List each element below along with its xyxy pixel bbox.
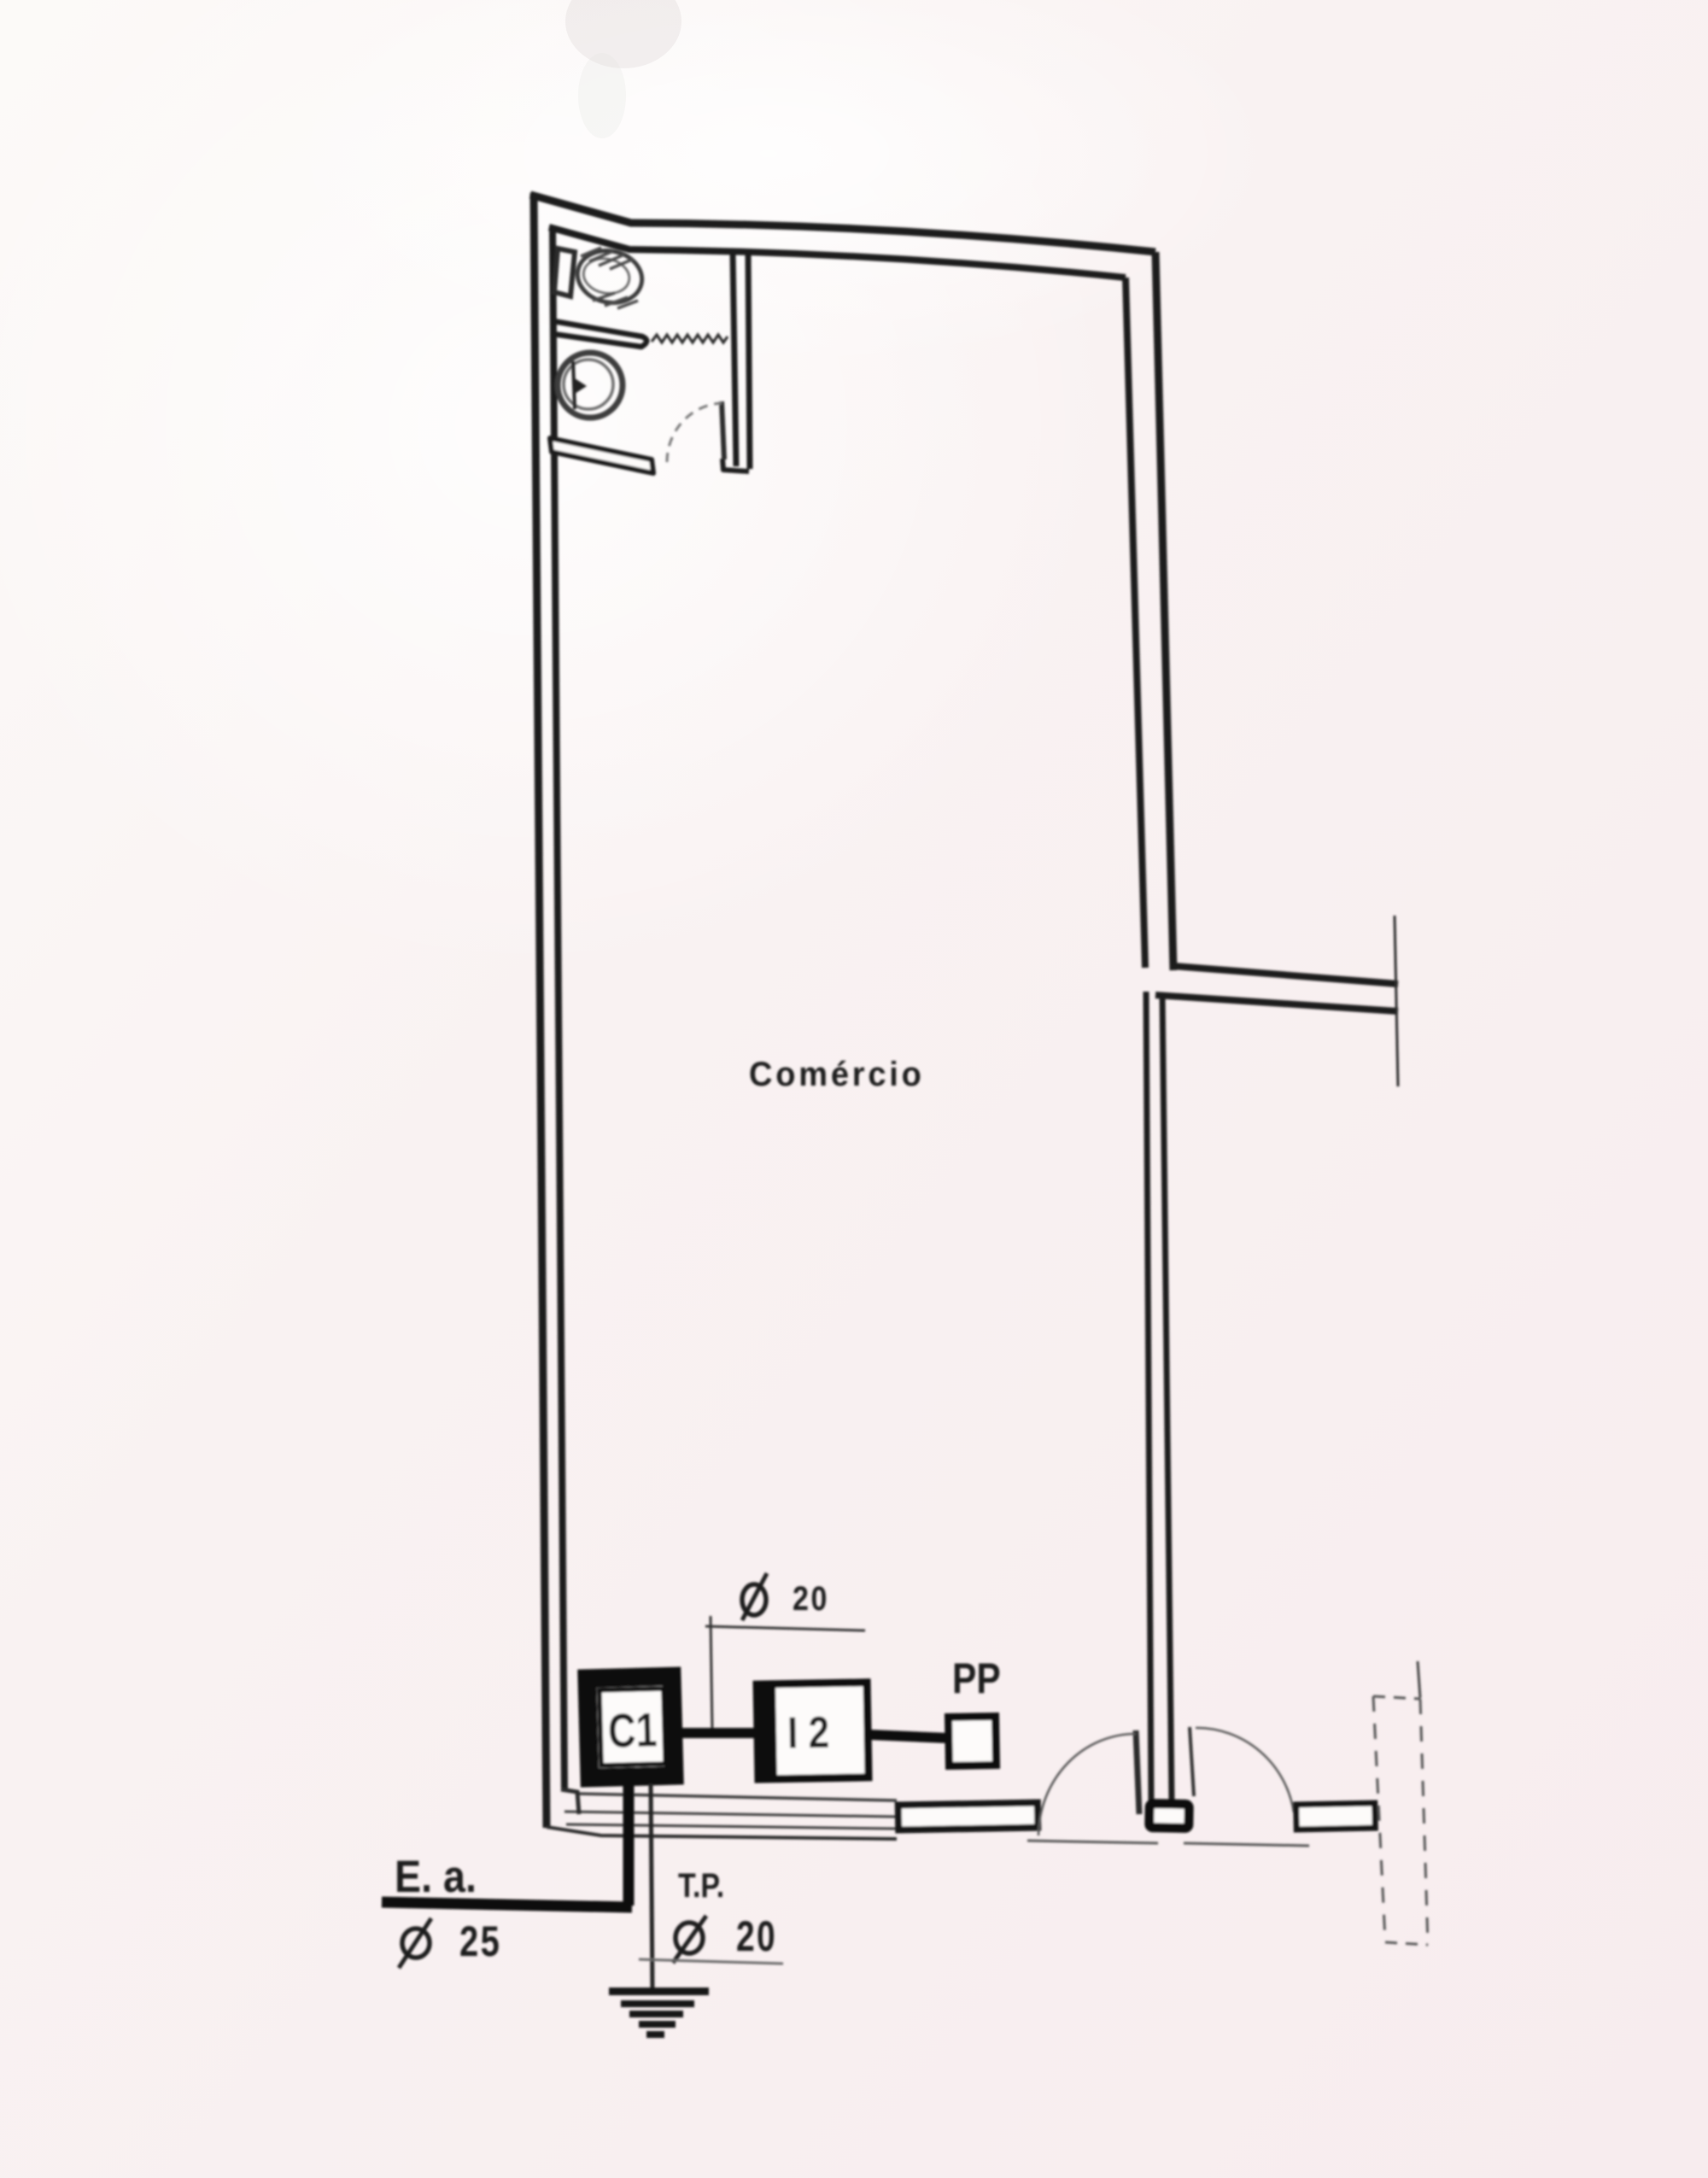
svg-text:I 2: I 2 (787, 1707, 830, 1758)
svg-text:20: 20 (736, 1912, 777, 1960)
svg-text:C1: C1 (607, 1702, 658, 1757)
svg-text:Comércio: Comércio (749, 1056, 925, 1093)
svg-text:20: 20 (793, 1578, 829, 1617)
svg-text:PP: PP (952, 1654, 1001, 1702)
svg-text:E. a.: E. a. (395, 1851, 477, 1901)
svg-text:25: 25 (459, 1917, 501, 1965)
svg-text:T.P.: T.P. (678, 1865, 724, 1904)
